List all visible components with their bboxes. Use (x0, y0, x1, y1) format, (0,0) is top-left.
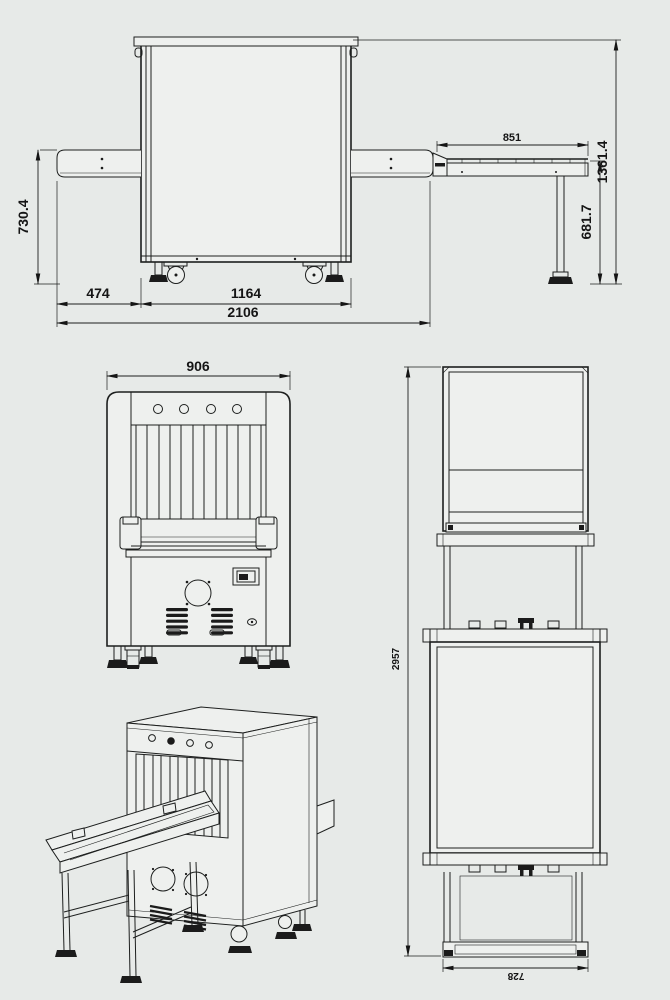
dimension-label: 1361.4 (594, 140, 610, 183)
side-elevation-view: 730.4 474 1164 2106 851 681.7 (15, 37, 622, 327)
dimension-label: 681.7 (578, 204, 594, 239)
exit-conveyor (351, 150, 447, 177)
dimension-label: 474 (86, 285, 110, 301)
front-feet (107, 646, 290, 669)
entry-roller-bar (446, 523, 586, 532)
machine-body-top (423, 629, 607, 876)
front-elevation-view: 906 (107, 358, 290, 669)
belt-clamp (518, 618, 534, 629)
technical-drawing-page: 730.4 474 1164 2106 851 681.7 (0, 0, 670, 1000)
entry-frame-rails (437, 534, 594, 629)
exit-conveyor-stub (317, 800, 334, 834)
leveling-foot (325, 262, 344, 282)
exit-table-top (443, 872, 588, 957)
dimension-entry-conveyor-length: 474 (57, 181, 141, 327)
caster-wheel (303, 262, 326, 284)
dimension-label: 730.4 (15, 199, 31, 234)
dimension-label: 851 (503, 132, 521, 144)
table-leg (548, 176, 573, 284)
conveyor-belt-assembly (120, 517, 277, 557)
dimension-overall-width: 906 (107, 358, 290, 390)
leveling-foot (149, 262, 168, 282)
power-switch-panel (233, 568, 259, 585)
dimension-label: 2106 (227, 304, 258, 320)
entry-table-top (443, 367, 588, 532)
dimension-label: 1164 (231, 285, 262, 301)
belt-clamp (518, 865, 534, 876)
technical-drawing-canvas: 730.4 474 1164 2106 851 681.7 (0, 0, 670, 1000)
entry-conveyor (57, 150, 141, 177)
exit-roller-table (447, 159, 588, 284)
cabinet-outline (134, 37, 358, 262)
dimension-label: 728 (507, 970, 524, 981)
isometric-view (46, 707, 334, 983)
dimension-label: 2957 (391, 647, 402, 670)
dimension-label: 906 (186, 358, 210, 374)
plan-view: 2957 728 (391, 367, 607, 981)
dimension-table-width: 728 (443, 959, 588, 981)
dimension-conveyor-height: 730.4 (15, 150, 60, 284)
dimension-exit-table-length: 851 (437, 132, 588, 156)
